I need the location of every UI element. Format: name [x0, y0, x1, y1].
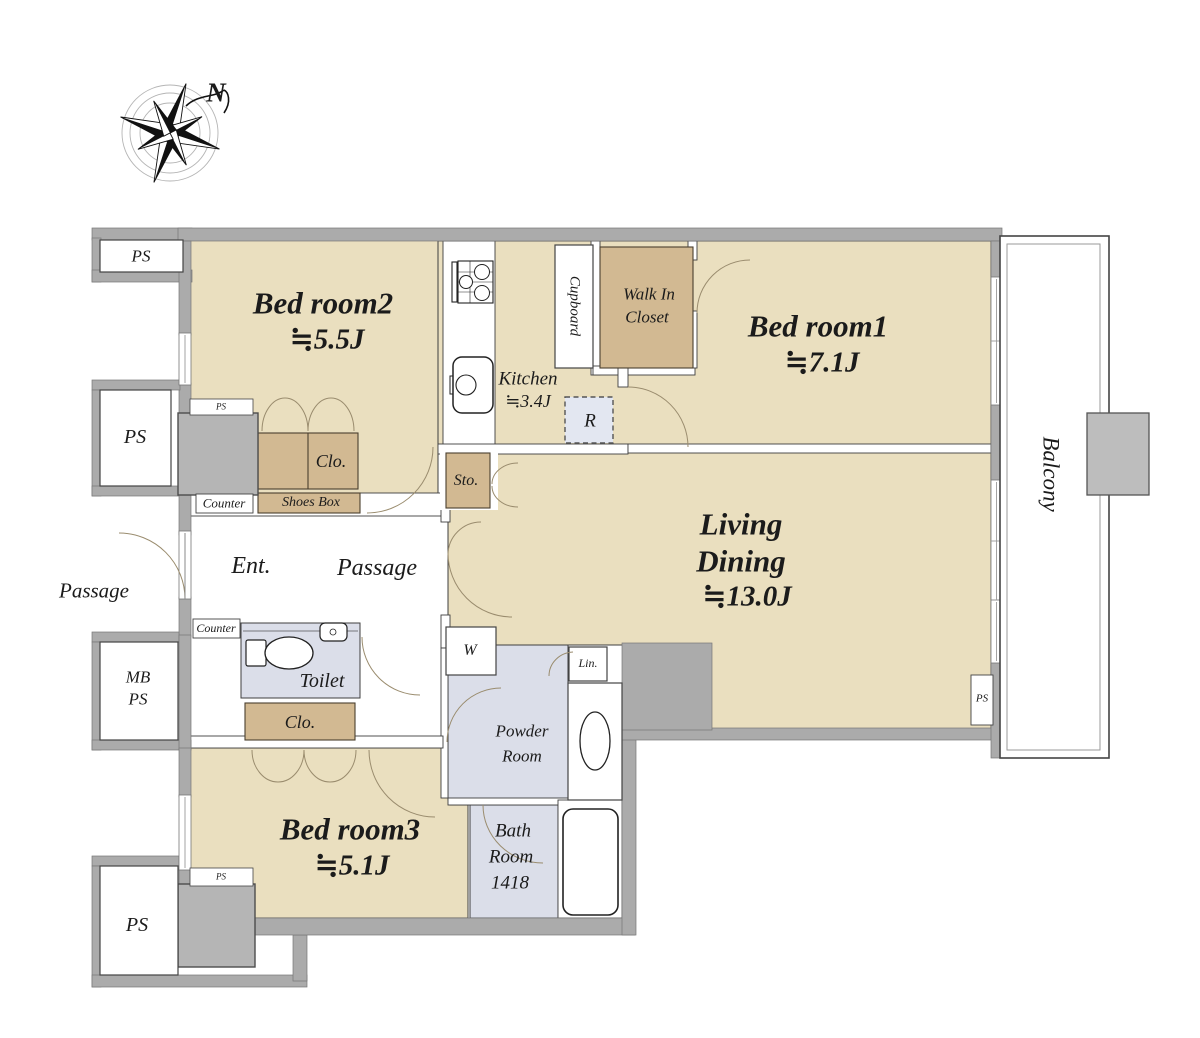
- bedroom3-name: Bed room3: [280, 814, 420, 845]
- bedroom2-area: ≒5.5J: [289, 326, 364, 355]
- entrance-label: Ent.: [231, 554, 270, 578]
- bath-room-label-1: Bath: [495, 822, 531, 841]
- shoes-box-label: Shoes Box: [282, 496, 340, 510]
- linen-label: Lin.: [578, 657, 597, 669]
- floorplan-page: Bed room2 ≒5.5J Bed room1 ≒7.1J Bed room…: [0, 0, 1200, 1038]
- walk-in-closet-label-1: Walk In: [623, 286, 675, 303]
- bedroom1-name: Bed room1: [748, 311, 888, 342]
- bedroom3-area: ≒5.1J: [314, 852, 389, 881]
- ps-label-small-2: PS: [216, 873, 226, 882]
- mb-ps-label: PS: [129, 691, 148, 708]
- bedroom2-name: Bed room2: [253, 288, 393, 319]
- powder-room-label-2: Room: [502, 748, 542, 765]
- living-area: ≒13.0J: [702, 583, 792, 612]
- ps-label-living: PS: [976, 694, 988, 705]
- bedroom1-area: ≒7.1J: [784, 349, 859, 378]
- washbasin-icon: [580, 712, 610, 770]
- ps-label-left: PS: [124, 427, 146, 447]
- washer-label: W: [463, 643, 476, 659]
- kitchen-name: Kitchen: [498, 370, 557, 389]
- balcony-label: Balcony: [1040, 436, 1063, 511]
- balcony-divider: [1087, 413, 1149, 495]
- stove-icon: [452, 261, 493, 303]
- ps-label-top: PS: [132, 248, 151, 265]
- balcony-outline: [1000, 236, 1149, 758]
- outside-passage-label: Passage: [59, 581, 129, 602]
- toilet-label: Toilet: [300, 671, 345, 691]
- refrigerator-label: R: [584, 412, 596, 431]
- mb-label: MB: [126, 669, 151, 686]
- living-label-2: Dining: [696, 546, 786, 577]
- walk-in-closet-label-2: Closet: [625, 309, 668, 326]
- cupboard-label: Cupboard: [567, 276, 582, 336]
- kitchen-area: ≒3.4J: [505, 392, 551, 410]
- powder-room-label-1: Powder: [496, 723, 549, 740]
- compass-north-label: N: [206, 80, 226, 107]
- floorplan-drawing: [0, 0, 1200, 1038]
- ps-label-small-1: PS: [216, 403, 226, 412]
- counter-label-1: Counter: [203, 497, 246, 510]
- living-label-1: Living: [700, 509, 783, 540]
- passage-label: Passage: [337, 556, 417, 580]
- bathtub-icon: [563, 809, 618, 915]
- closet-bedroom3-label: Clo.: [285, 713, 316, 731]
- closet-bedroom2-label: Clo.: [316, 452, 347, 470]
- bath-room-size-label: 1418: [491, 874, 529, 893]
- ps-label-bottom: PS: [126, 915, 148, 935]
- kitchen-sink-icon: [450, 357, 493, 413]
- counter-label-2: Counter: [196, 622, 235, 634]
- bath-room-label-2: Room: [489, 848, 533, 867]
- storage-label: Sto.: [454, 473, 478, 489]
